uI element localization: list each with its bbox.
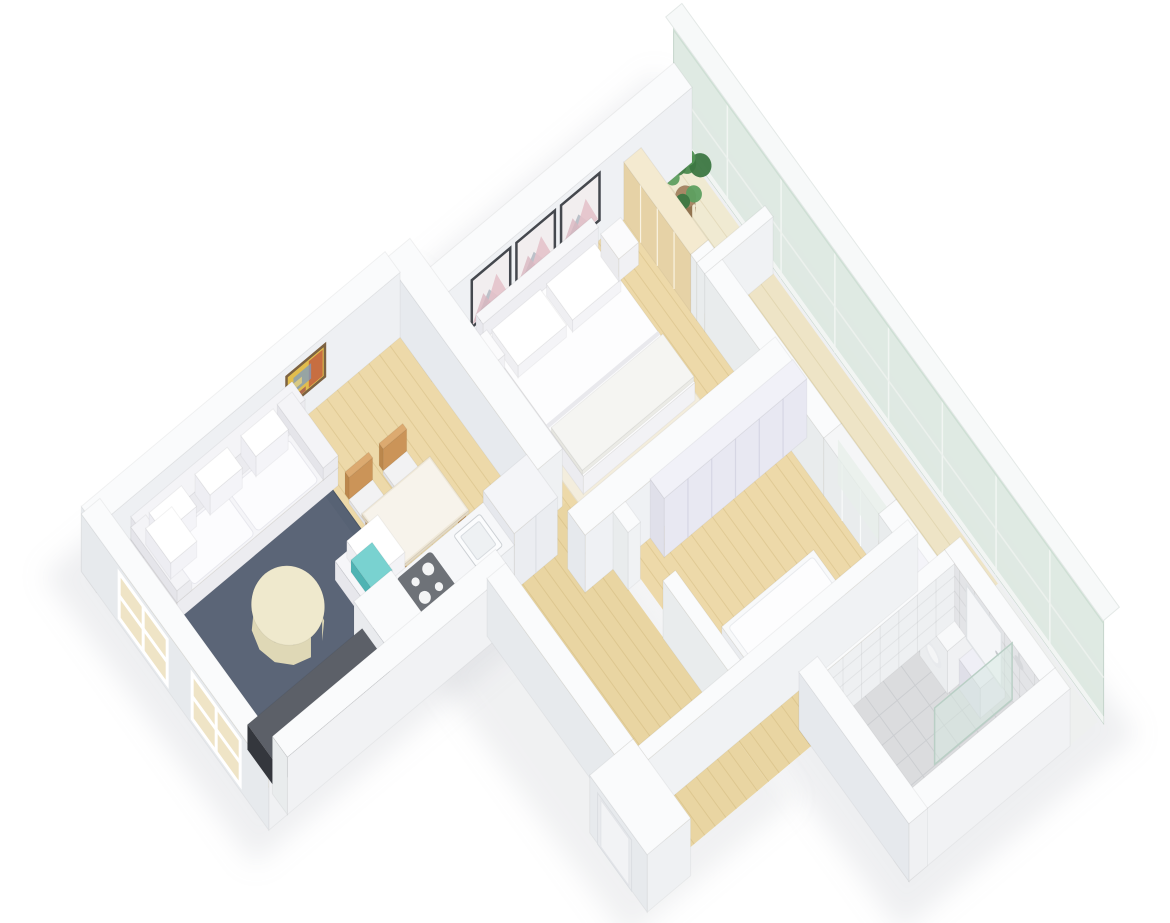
- floorplan-viewport: [0, 0, 1170, 923]
- apartment-3d-floorplan: [0, 0, 1170, 923]
